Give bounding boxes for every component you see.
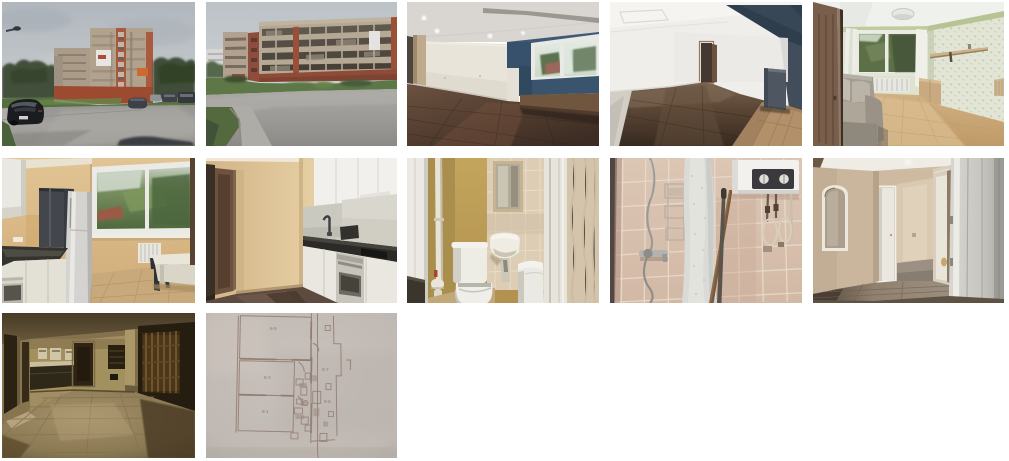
svg-text:8-2: 8-2 [264, 375, 271, 380]
svg-text:8-5: 8-5 [270, 326, 277, 331]
svg-text:8-8: 8-8 [324, 399, 331, 404]
svg-text:8-7: 8-7 [322, 367, 329, 372]
svg-text:8-1: 8-1 [262, 409, 269, 414]
